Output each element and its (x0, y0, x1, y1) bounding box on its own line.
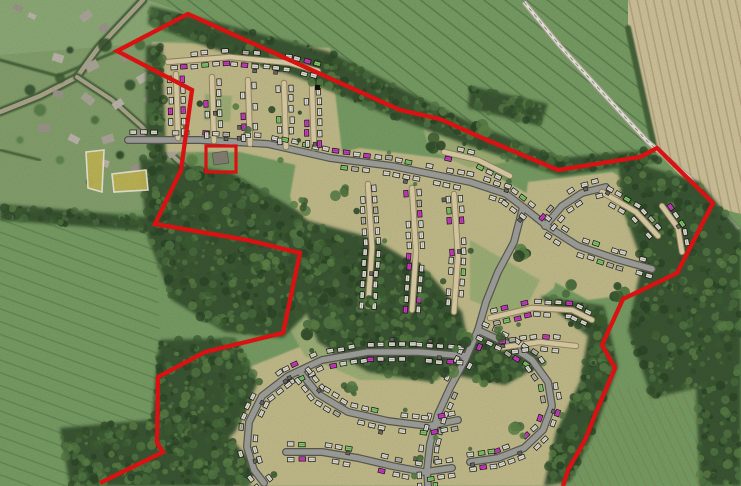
masterplan-svg (0, 0, 741, 486)
photo-grain-overlay (0, 0, 741, 486)
masterplan-map (0, 0, 741, 486)
